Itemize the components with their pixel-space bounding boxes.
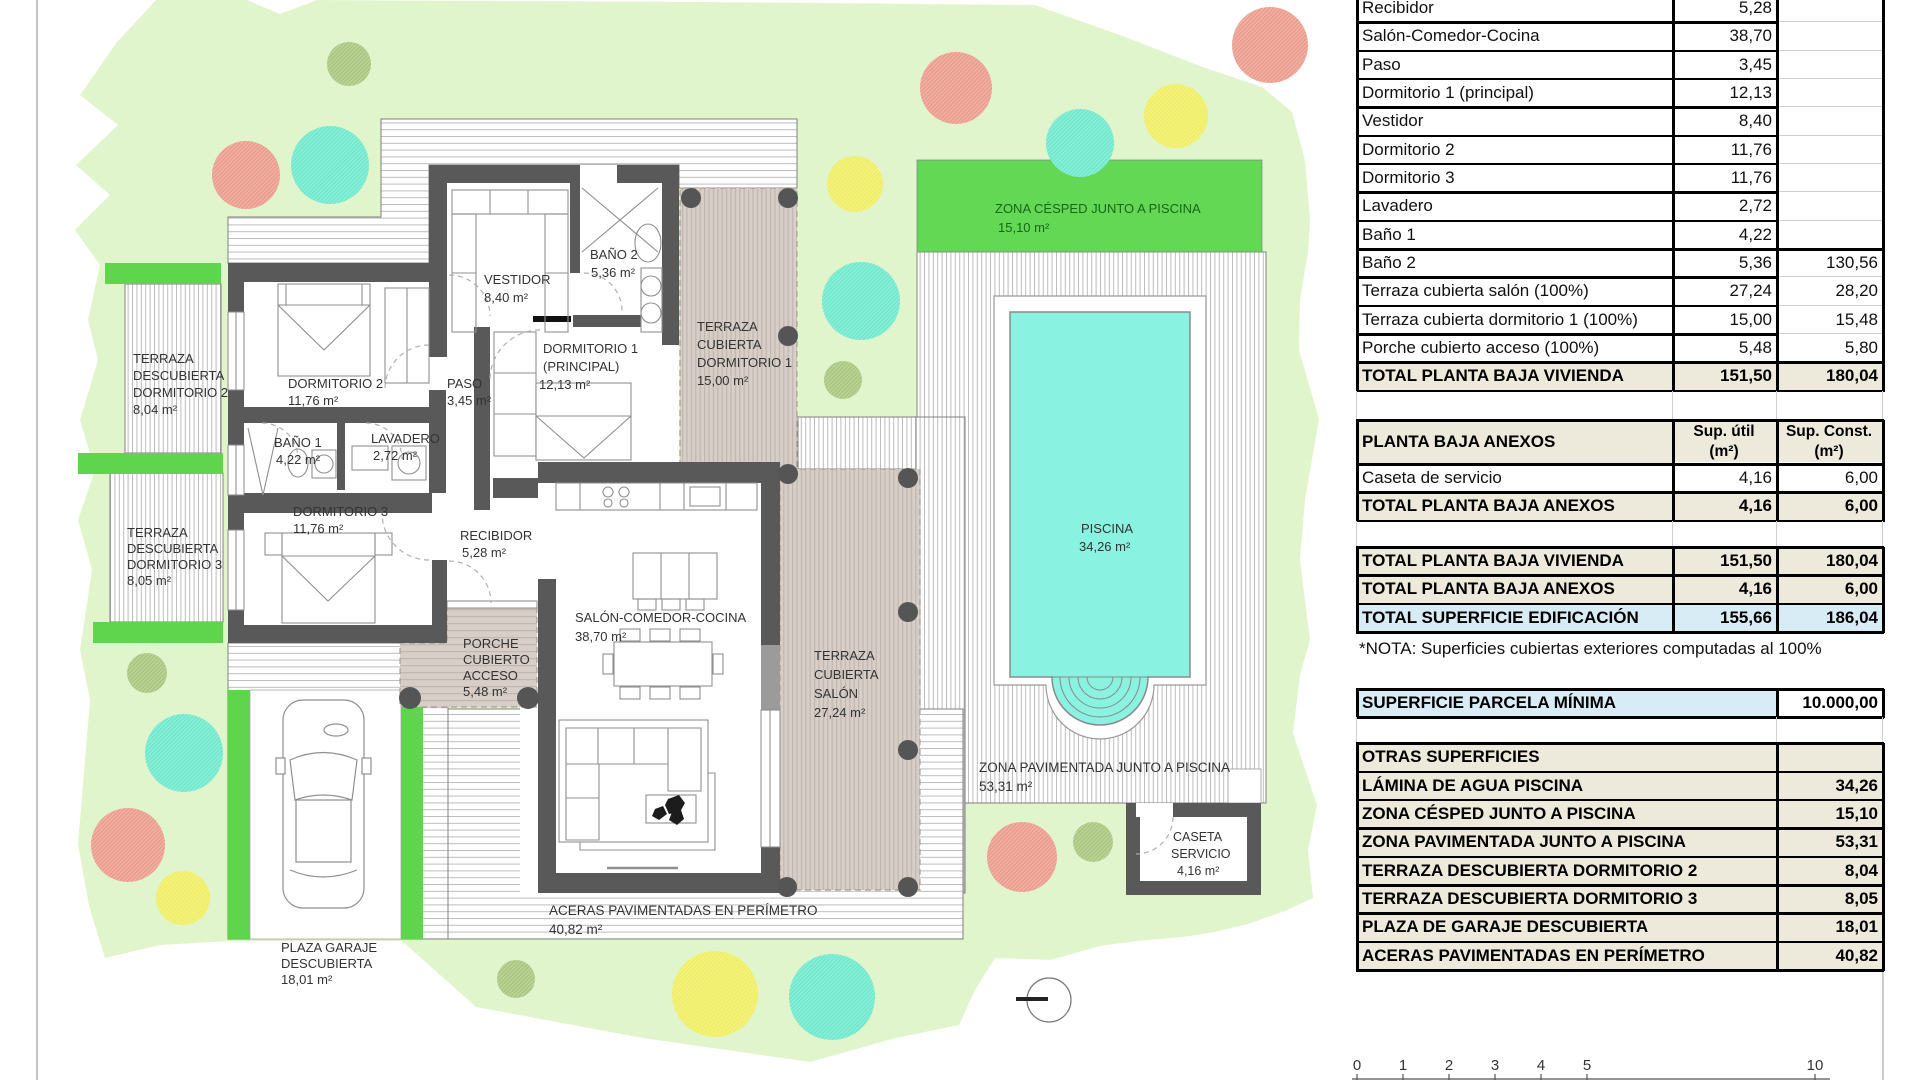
svg-text:PORCHE: PORCHE: [463, 636, 519, 651]
svg-text:27,24 m²: 27,24 m²: [814, 705, 866, 720]
svg-text:DESCUBIERTA: DESCUBIERTA: [281, 956, 373, 971]
svg-text:2,72 m²: 2,72 m²: [373, 448, 418, 463]
svg-text:DORMITORIO 1: DORMITORIO 1: [543, 341, 638, 356]
svg-text:5,28 m²: 5,28 m²: [462, 545, 507, 560]
svg-text:PASO: PASO: [447, 376, 482, 391]
svg-text:8,04 m²: 8,04 m²: [133, 402, 178, 417]
svg-text:TERRAZA: TERRAZA: [133, 351, 194, 366]
svg-text:DESCUBIERTA: DESCUBIERTA: [127, 541, 219, 556]
svg-text:DORMITORIO 3: DORMITORIO 3: [127, 557, 222, 572]
svg-text:ZONA CÉSPED JUNTO A PISCINA: ZONA CÉSPED JUNTO A PISCINA: [995, 201, 1201, 216]
svg-text:TERRAZA: TERRAZA: [697, 319, 758, 334]
svg-text:VESTIDOR: VESTIDOR: [484, 272, 550, 287]
svg-text:15,10 m²: 15,10 m²: [998, 220, 1050, 235]
svg-text:2: 2: [1445, 1057, 1453, 1074]
svg-text:CASETA: CASETA: [1173, 830, 1223, 844]
svg-text:DORMITORIO 1: DORMITORIO 1: [697, 355, 792, 370]
svg-text:34,26 m²: 34,26 m²: [1079, 539, 1131, 554]
svg-text:4,22 m²: 4,22 m²: [276, 452, 321, 467]
svg-text:BAÑO 2: BAÑO 2: [590, 247, 638, 262]
svg-text:SALÓN: SALÓN: [814, 686, 858, 701]
svg-text:CUBIERTO: CUBIERTO: [463, 652, 530, 667]
svg-text:18,01 m²: 18,01 m²: [281, 972, 333, 987]
svg-text:PLAZA GARAJE: PLAZA GARAJE: [281, 940, 377, 955]
svg-text:38,70 m²: 38,70 m²: [575, 629, 627, 644]
svg-text:ACCESO: ACCESO: [463, 668, 518, 683]
svg-text:RECIBIDOR: RECIBIDOR: [460, 528, 532, 543]
svg-text:12,13 m²: 12,13 m²: [539, 377, 591, 392]
svg-text:5,48 m²: 5,48 m²: [463, 684, 508, 699]
svg-text:3: 3: [1491, 1057, 1499, 1074]
svg-text:0: 0: [1353, 1057, 1361, 1074]
svg-text:8,05 m²: 8,05 m²: [127, 573, 172, 588]
svg-text:DORMITORIO 2: DORMITORIO 2: [288, 376, 383, 391]
svg-text:40,82 m²: 40,82 m²: [549, 922, 603, 937]
svg-text:TERRAZA: TERRAZA: [127, 525, 188, 540]
svg-text:BAÑO 1: BAÑO 1: [274, 435, 322, 450]
svg-text:CUBIERTA: CUBIERTA: [697, 337, 762, 352]
svg-text:8,40 m²: 8,40 m²: [484, 290, 529, 305]
svg-text:5: 5: [1583, 1057, 1591, 1074]
svg-text:11,76 m²: 11,76 m²: [288, 393, 339, 408]
svg-text:10: 10: [1807, 1057, 1824, 1074]
svg-text:CUBIERTA: CUBIERTA: [814, 667, 879, 682]
svg-text:(PRINCIPAL): (PRINCIPAL): [543, 359, 619, 374]
svg-text:1: 1: [1399, 1057, 1407, 1074]
svg-text:11,76 m²: 11,76 m²: [293, 521, 344, 536]
svg-text:PISCINA: PISCINA: [1081, 521, 1133, 536]
svg-text:ZONA PAVIMENTADA JUNTO A PISCI: ZONA PAVIMENTADA JUNTO A PISCINA: [979, 760, 1230, 775]
svg-text:15,00 m²: 15,00 m²: [697, 373, 749, 388]
svg-text:DORMITORIO 3: DORMITORIO 3: [293, 504, 388, 519]
svg-text:4: 4: [1537, 1057, 1545, 1074]
svg-text:LAVADERO: LAVADERO: [371, 431, 440, 446]
svg-text:3,45 m²: 3,45 m²: [447, 393, 492, 408]
svg-text:ACERAS PAVIMENTADAS EN PERÍMET: ACERAS PAVIMENTADAS EN PERÍMETRO: [549, 903, 818, 918]
svg-text:DORMITORIO 2: DORMITORIO 2: [133, 385, 228, 400]
svg-text:TERRAZA: TERRAZA: [814, 648, 875, 663]
svg-text:5,36 m²: 5,36 m²: [591, 265, 636, 280]
svg-text:SALÓN-COMEDOR-COCINA: SALÓN-COMEDOR-COCINA: [575, 610, 747, 625]
svg-text:4,16 m²: 4,16 m²: [1177, 864, 1219, 878]
svg-text:DESCUBIERTA: DESCUBIERTA: [133, 368, 225, 383]
svg-text:SERVICIO: SERVICIO: [1171, 847, 1231, 861]
svg-text:53,31 m²: 53,31 m²: [979, 779, 1033, 794]
